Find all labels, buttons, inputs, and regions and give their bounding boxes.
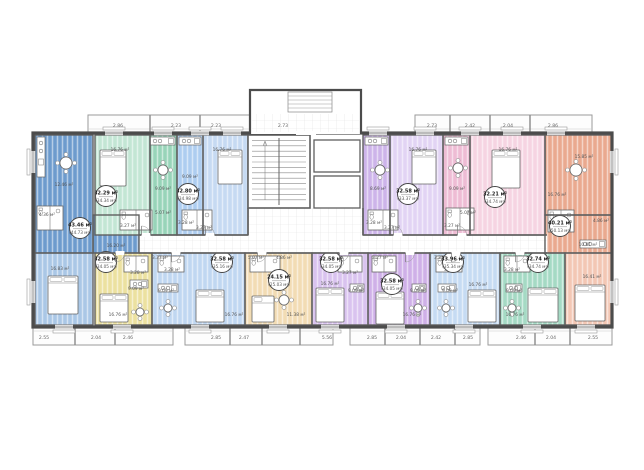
room-area-label: 3.28 м²	[164, 267, 180, 273]
apartment-unit-10[interactable]: 3.27 м²9.09 м²16.76 м²32.58 м²(34.05 м²)	[312, 252, 368, 326]
dimension-label: 2.46	[516, 335, 526, 341]
window-sill	[111, 330, 133, 333]
window-gap	[31, 151, 35, 173]
floor-plan: 12.46 м²4.36 м²16.20 м²16.83 м²43.46 м²(…	[0, 0, 644, 470]
room-area-label: 3.28 м²	[178, 220, 194, 226]
window-gap	[577, 325, 595, 329]
room-area-label: 3.37 м²	[152, 255, 168, 261]
bed-pillow	[470, 292, 481, 296]
room-area-label: 16.76 м²	[409, 147, 428, 153]
room-area-label: 4.86 м²	[276, 255, 292, 261]
chair	[275, 298, 279, 302]
chair	[138, 304, 142, 308]
chair	[444, 300, 448, 304]
apartment-unit-12[interactable]: 3.37 м²3.28 м²9.09 м²16.76 м²33.96 м²(35…	[430, 252, 500, 326]
chair	[161, 161, 165, 165]
room-area-label: 16.41 м²	[583, 274, 602, 280]
window	[367, 127, 389, 135]
chair	[386, 168, 390, 172]
dimension-label: 2.23	[171, 123, 181, 129]
room-area-label: 16.20 м²	[107, 243, 126, 249]
window-sill	[189, 127, 211, 130]
window	[27, 149, 35, 175]
dimension-label: 2.04	[396, 335, 406, 341]
dining-table	[570, 164, 582, 176]
area-badge-total: (34.05 м²)	[381, 286, 403, 291]
area-badge-total: (34.34 м²)	[95, 198, 117, 203]
bed-pillow	[591, 287, 603, 291]
window-sill	[319, 330, 341, 333]
chair	[290, 298, 294, 302]
kitchen-counter	[37, 137, 45, 177]
window-sill	[453, 330, 475, 333]
window	[111, 325, 133, 333]
area-badge-main: 32.29 м²	[94, 191, 118, 197]
door-gap	[340, 251, 349, 255]
window-gap	[55, 325, 73, 329]
dimension-label: 2.55	[588, 335, 598, 341]
door-gap	[258, 251, 267, 255]
chair	[173, 306, 177, 310]
window	[221, 127, 243, 135]
chair	[410, 306, 414, 310]
room-area-label: 12.46 м²	[55, 182, 74, 188]
bed-pillow	[198, 292, 209, 296]
area-badge-main: 32.80 м²	[176, 189, 200, 195]
bed-pillow	[254, 298, 262, 302]
window-sill	[27, 149, 30, 175]
chair	[444, 313, 448, 317]
entrance-tiles	[252, 114, 359, 132]
window-sill	[367, 127, 389, 130]
window-gap	[455, 325, 473, 329]
window-gap	[31, 281, 35, 303]
chair	[282, 291, 286, 295]
stair-core	[248, 135, 360, 208]
area-badge-total: (25.03 м²)	[268, 282, 290, 287]
chair	[438, 306, 442, 310]
room-area-label: 10.81 м²	[579, 242, 598, 248]
chair	[583, 168, 587, 172]
apartment-unit-5[interactable]: 9.09 м²16.76 м²5.07 м²3.27 м²32.21 м²(34…	[443, 135, 545, 235]
door-gap	[142, 233, 151, 237]
room-area-label: 16.76 м²	[225, 312, 244, 318]
chair	[416, 300, 420, 304]
door-gap	[116, 251, 125, 255]
window	[189, 127, 211, 135]
room-area-label: 16.76 м²	[548, 192, 567, 198]
chair	[456, 174, 460, 178]
chair	[371, 168, 375, 172]
bed-pillow	[331, 290, 342, 294]
door-gap	[452, 251, 461, 255]
area-badge-total: (34.74 м²)	[527, 264, 549, 269]
window	[453, 325, 475, 333]
room-area-label: 16.76 м²	[213, 147, 232, 153]
window-gap	[523, 325, 541, 329]
dining-table	[508, 304, 516, 312]
window	[385, 325, 407, 333]
dimension-label: 2.23	[211, 123, 221, 129]
area-badge-main: 32.58 м²	[396, 189, 420, 195]
dining-table	[375, 165, 385, 175]
window-gap	[503, 131, 521, 135]
window	[610, 279, 618, 305]
chair	[464, 166, 468, 170]
room-area-label: 4.36 м²	[39, 212, 55, 218]
window-gap	[547, 131, 565, 135]
room-area-label: 16.76 м²	[469, 282, 488, 288]
room-area-label: 9.09 м²	[158, 288, 174, 294]
window-sill	[27, 279, 30, 305]
chair	[510, 300, 514, 304]
entrance	[250, 90, 361, 135]
room-area-label: 5.07 м²	[155, 210, 171, 216]
chair	[145, 310, 149, 314]
room-area-label: 16.76 м²	[321, 281, 340, 287]
dining-table	[60, 157, 72, 169]
dimension-label: 2.42	[465, 123, 475, 129]
kitchen-counter	[150, 137, 175, 145]
area-badge-main: 32.58 м²	[94, 257, 118, 263]
window	[27, 279, 35, 305]
door-gap	[172, 251, 181, 255]
area-badge-main: 32.58 м²	[210, 257, 234, 263]
dining-table	[453, 163, 463, 173]
room-area-label: 16.76 м²	[506, 312, 525, 318]
window-sill	[615, 279, 618, 305]
bed-pillow	[530, 290, 542, 294]
chair	[517, 306, 521, 310]
chair	[161, 176, 165, 180]
apartment-unit-3[interactable]: 9.09 м²16.76 м²3.28 м²3.27 м²32.80 м²(34…	[176, 135, 248, 235]
bed-pillow	[211, 292, 222, 296]
elevator-shaft	[314, 176, 360, 208]
dimension-label: 2.42	[431, 335, 441, 341]
window-gap	[191, 131, 209, 135]
window-sill	[521, 330, 543, 333]
window-gap	[105, 131, 123, 135]
dining-table	[279, 295, 289, 305]
door-gap	[516, 251, 525, 255]
chair	[138, 317, 142, 321]
dimension-label: 2.04	[503, 123, 513, 129]
chair	[574, 160, 578, 164]
room-area-label: 8.69 м²	[370, 186, 386, 192]
dimension-label: 2.73	[278, 123, 288, 129]
window-sill	[267, 330, 289, 333]
chair	[56, 161, 60, 165]
dimension-label: 5.56	[322, 335, 332, 341]
dining-table	[414, 304, 422, 312]
room-area-label: 4.86 м²	[593, 218, 609, 224]
window-gap	[113, 325, 131, 329]
area-badge-total: (34.98 м²)	[177, 196, 199, 201]
window-gap	[191, 325, 209, 329]
room-area-label: 3.27 м²	[120, 223, 136, 229]
bed-pillow	[483, 292, 494, 296]
window-gap	[154, 131, 172, 135]
window-sill	[221, 127, 243, 130]
apartment-unit-9[interactable]: 5.07 м²4.86 м²11.38 м²24.15 м²(25.03 м²)	[245, 253, 312, 325]
chair	[378, 176, 382, 180]
chair	[73, 161, 77, 165]
area-badge-total: (50.13 м²)	[549, 228, 571, 233]
window-gap	[321, 325, 339, 329]
window-sill	[53, 330, 75, 333]
door-gap	[206, 233, 215, 237]
apartment-unit-13[interactable]: 3.28 м²9.09 м²16.76 м²32.74 м²(34.74 м²)	[500, 252, 565, 326]
entrance-steps	[288, 92, 332, 112]
room-area-label: 11.38 м²	[287, 312, 306, 318]
dining-table	[164, 304, 172, 312]
window-gap	[610, 151, 614, 173]
dimension-label: 2.04	[546, 335, 556, 341]
room-area-label: 3.28 м²	[366, 220, 382, 226]
area-badge-total: (35.16 м²)	[211, 264, 233, 269]
floor-plan-svg: 12.46 м²4.36 м²16.20 м²16.83 м²43.46 м²(…	[0, 0, 644, 470]
window-gap	[223, 131, 241, 135]
window-gap	[269, 325, 287, 329]
chair	[456, 159, 460, 163]
bed-pillow	[378, 294, 389, 298]
area-badge-main: 32.21 м²	[483, 192, 507, 198]
door-gap	[406, 251, 415, 255]
window-gap	[369, 131, 387, 135]
room-area-label: 3.27 м²	[372, 255, 388, 261]
window	[267, 325, 289, 333]
bed-pillow	[50, 278, 62, 282]
chair	[574, 177, 578, 181]
room-area-label: 5.07 м²	[460, 210, 476, 216]
area-badge-main: 33.96 м²	[441, 257, 465, 263]
dining-table	[442, 304, 450, 312]
apartment-unit-2[interactable]: 16.76 м²9.09 м²5.07 м²3.27 м²32.29 м²(34…	[94, 135, 177, 235]
room-area-label: 9.09 м²	[410, 288, 426, 294]
window	[610, 149, 618, 175]
dimension-label: 2.55	[39, 335, 49, 341]
window-sill	[385, 330, 407, 333]
chair	[166, 300, 170, 304]
window	[319, 325, 341, 333]
window-gap	[416, 131, 434, 135]
dimension-label: 2.85	[463, 335, 473, 341]
apartment-unit-11[interactable]: 3.27 м²9.09 м²16.76 м²32.58 м²(34.05 м²)	[368, 253, 430, 325]
area-badge-total: (34.05 м²)	[320, 264, 342, 269]
room-area-label: 16.76 м²	[111, 147, 130, 153]
room-area-label: 9.09 м²	[449, 186, 465, 192]
unit-floor-hatch	[150, 135, 177, 235]
chair	[566, 168, 570, 172]
chair	[282, 306, 286, 310]
dimension-label: 2.04	[91, 335, 101, 341]
window	[521, 325, 543, 333]
dining-table	[136, 308, 144, 316]
room-area-label: 9.09 м²	[506, 288, 522, 294]
bed-pillow	[231, 152, 240, 156]
door-gap	[458, 233, 467, 237]
dimension-label: 2.85	[367, 335, 377, 341]
window-gap	[461, 131, 479, 135]
room-area-label: 3.28 м²	[130, 270, 146, 276]
lobby-tiles	[248, 208, 363, 253]
dimension-label: 2.86	[113, 123, 123, 129]
window-gap	[387, 325, 405, 329]
area-badge-total: (34.05 м²)	[95, 264, 117, 269]
apartment-unit-7[interactable]: 3.28 м²9.09 м²16.76 м²32.58 м²(34.05 м²)	[94, 252, 152, 326]
area-badge-total: (34.74 м²)	[484, 199, 506, 204]
bed-pillow	[318, 290, 329, 294]
elevator-shaft	[314, 140, 360, 172]
room-area-label: 3.27 м²	[342, 270, 358, 276]
room-area-label: 16.83 м²	[51, 266, 70, 272]
apartment-unit-8[interactable]: 3.37 м²3.28 м²9.09 м²16.76 м²32.58 м²(35…	[152, 252, 245, 326]
bed-pillow	[577, 287, 589, 291]
room-area-label: 3.27 м²	[196, 225, 212, 231]
dimension-label: 2.85	[211, 335, 221, 341]
window	[53, 325, 75, 333]
bed-pillow	[115, 296, 126, 300]
area-badge-total: (44.73 м²)	[69, 230, 91, 235]
room-area-label: 16.76 м²	[499, 147, 518, 153]
chair	[64, 153, 68, 157]
chair	[169, 168, 173, 172]
dimension-label: 2.86	[548, 123, 558, 129]
entrance-door-gap	[296, 131, 316, 135]
area-badge-main: 40.21 м²	[548, 221, 572, 227]
area-badge-main: 24.15 м²	[267, 275, 291, 281]
chair	[378, 161, 382, 165]
dining-table	[158, 165, 168, 175]
room-area-label: 3.27 м²	[384, 225, 400, 231]
area-badge-main: 32.58 м²	[380, 279, 404, 285]
room-area-label: 3.28 м²	[504, 267, 520, 273]
bed-pillow	[64, 278, 76, 282]
chair	[154, 168, 158, 172]
apartment-unit-4[interactable]: 8.69 м²16.76 м²3.28 м²3.27 м²32.58 м²(33…	[363, 135, 443, 235]
window	[189, 325, 211, 333]
window-gap	[610, 281, 614, 303]
room-area-label: 16.76 м²	[403, 312, 422, 318]
room-area-label: 5.07 м²	[248, 255, 264, 261]
area-badge-total: (35.34 м²)	[442, 264, 464, 269]
area-badge-main: 32.74 м²	[526, 257, 550, 263]
chair	[132, 310, 136, 314]
room-area-label: 9.09 м²	[128, 286, 144, 292]
chair	[166, 313, 170, 317]
window-sill	[189, 330, 211, 333]
room-area-label: 16.76 м²	[109, 312, 128, 318]
room-area-label: 9.09 м²	[155, 186, 171, 192]
dimension-label: 2.73	[427, 123, 437, 129]
window-sill	[615, 149, 618, 175]
room-area-label: 15.85 м²	[575, 154, 594, 160]
room-area-label: 9.09 м²	[442, 288, 458, 294]
chair	[160, 306, 164, 310]
dimension-label: 2.46	[123, 335, 133, 341]
bed-pillow	[544, 290, 556, 294]
window	[575, 325, 597, 333]
door-gap	[394, 233, 403, 237]
bed-pillow	[102, 296, 113, 300]
chair	[449, 166, 453, 170]
chair	[451, 306, 455, 310]
chair	[423, 306, 427, 310]
chair	[504, 306, 508, 310]
area-badge-total: (33.37 м²)	[397, 196, 419, 201]
chair	[64, 170, 68, 174]
area-badge-main: 43.46 м²	[68, 223, 92, 229]
room-area-label: 9.09 м²	[182, 174, 198, 180]
dimension-label: 2.47	[239, 335, 249, 341]
room-area-label: 9.09 м²	[348, 288, 364, 294]
window-sill	[575, 330, 597, 333]
